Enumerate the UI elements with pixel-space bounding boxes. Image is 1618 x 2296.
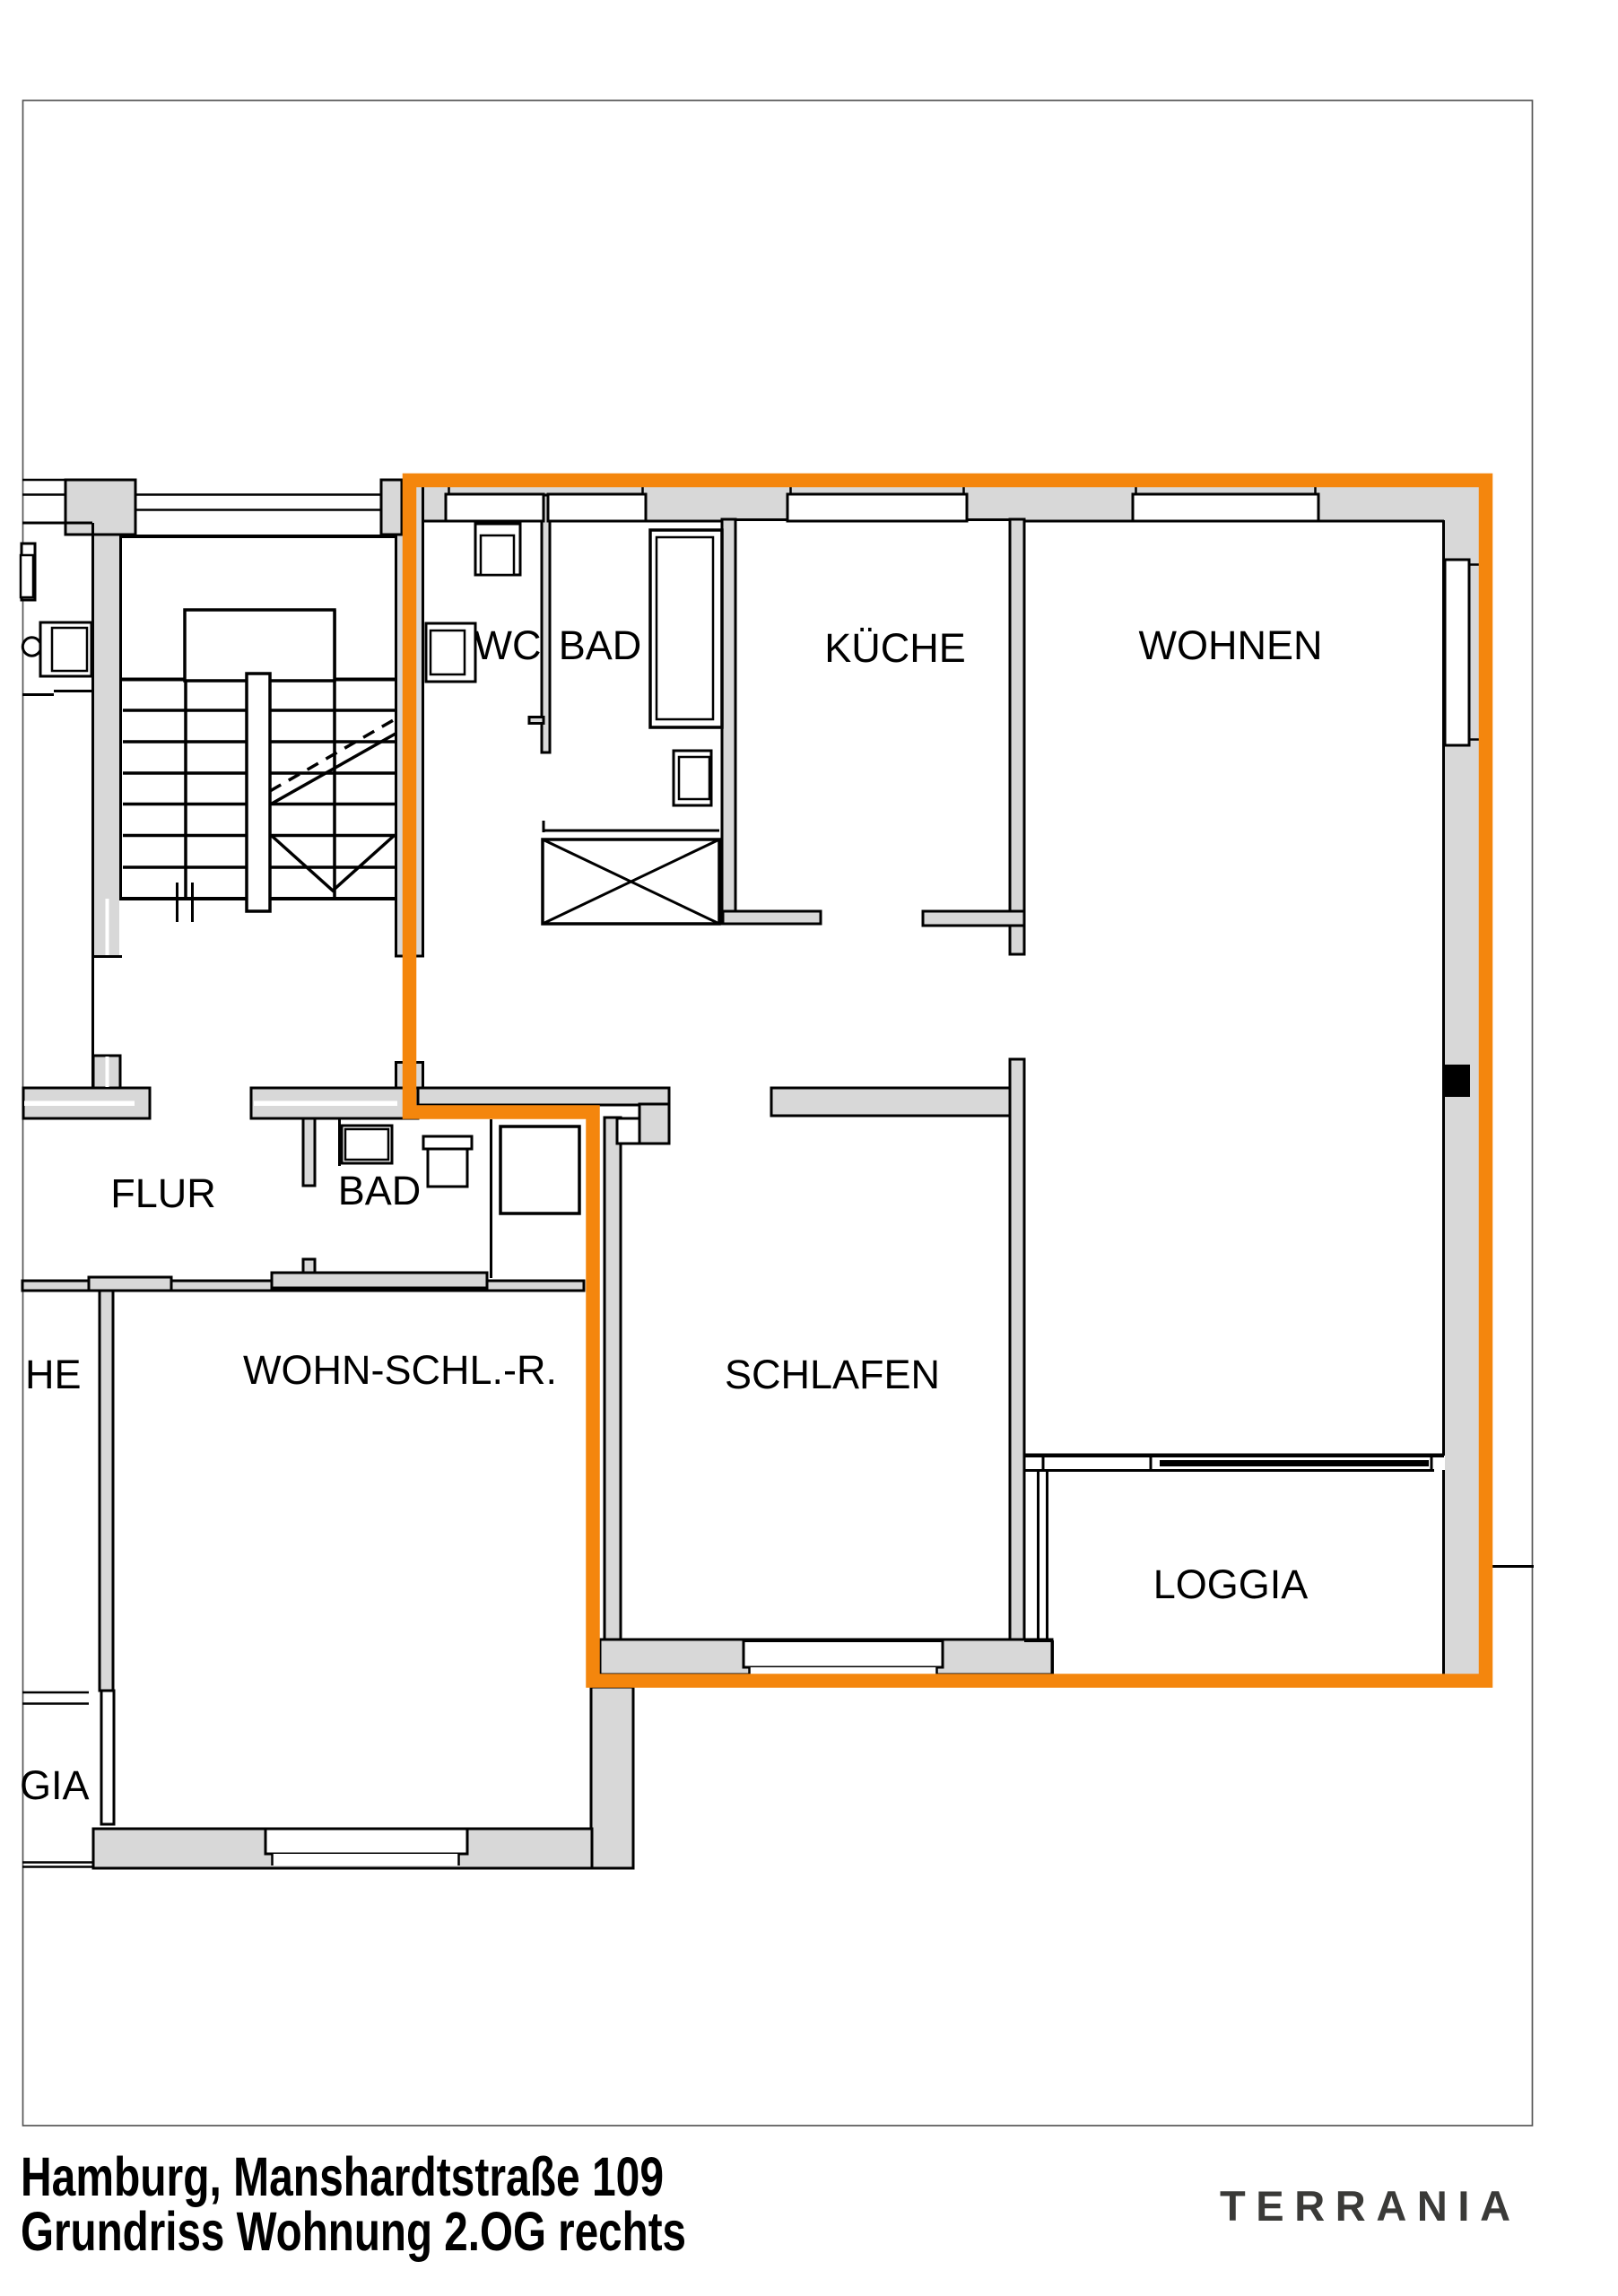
svg-text:WOHNEN: WOHNEN	[1139, 622, 1323, 668]
svg-text:Grundriss Wohnung 2.OG rechts: Grundriss Wohnung 2.OG rechts	[21, 2201, 686, 2262]
svg-text:TERRANIA: TERRANIA	[1220, 2182, 1521, 2230]
svg-text:HE: HE	[25, 1352, 82, 1397]
svg-text:KÜCHE: KÜCHE	[824, 625, 966, 671]
svg-text:WOHN-SCHL.-R.: WOHN-SCHL.-R.	[243, 1347, 557, 1393]
svg-text:FLUR: FLUR	[110, 1170, 216, 1216]
svg-text:BAD: BAD	[338, 1168, 422, 1213]
svg-text:GIA: GIA	[20, 1762, 90, 1808]
svg-text:LOGGIA: LOGGIA	[1153, 1561, 1309, 1607]
svg-text:Hamburg, Manshardtstraße 109: Hamburg, Manshardtstraße 109	[21, 2146, 664, 2207]
svg-text:WC: WC	[474, 622, 542, 668]
svg-text:SCHLAFEN: SCHLAFEN	[725, 1352, 940, 1397]
svg-text:BAD: BAD	[559, 622, 642, 668]
